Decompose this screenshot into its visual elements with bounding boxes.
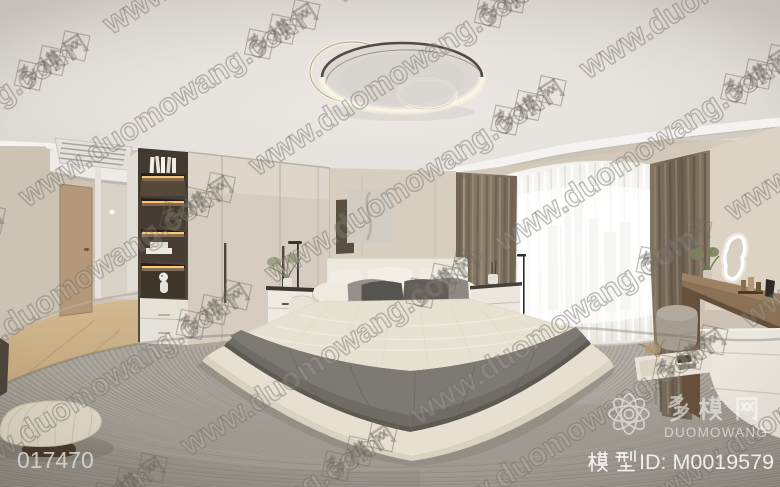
svg-text:DUOMOWANG: DUOMOWANG <box>664 425 768 440</box>
svg-text:ID: M0019579: ID: M0019579 <box>639 450 774 474</box>
svg-text:017470: 017470 <box>17 447 94 473</box>
